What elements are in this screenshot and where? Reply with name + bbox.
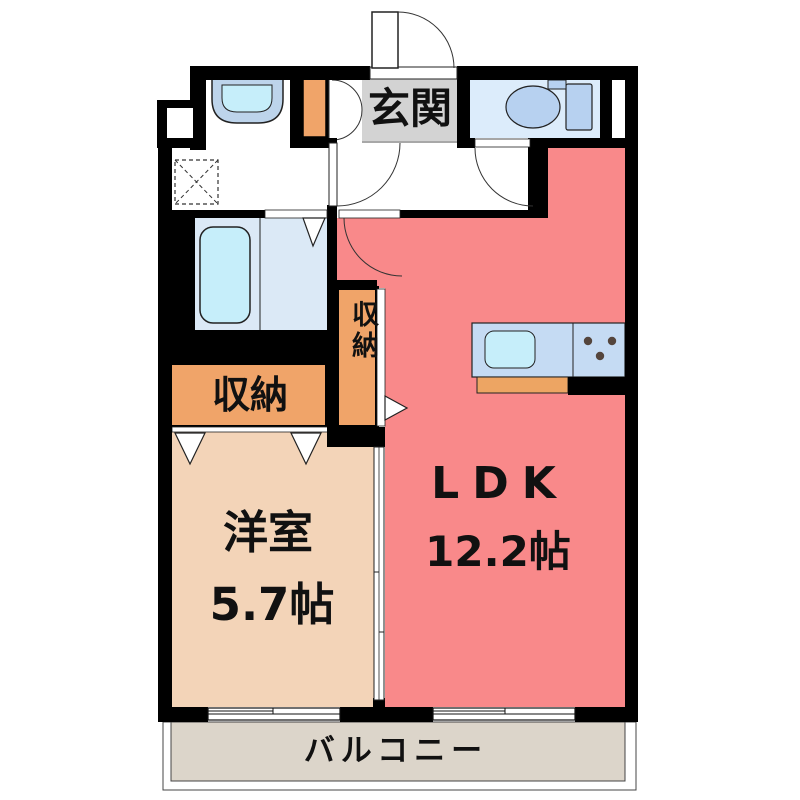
closet-label: 収納 — [168, 376, 332, 414]
ldk-floor — [548, 148, 625, 218]
toilet-tank — [566, 84, 592, 130]
wall — [625, 66, 638, 722]
wall — [190, 66, 370, 80]
ldk-door-opening — [339, 210, 400, 218]
toilet-door-opening — [475, 139, 530, 147]
wall — [600, 66, 612, 148]
western-room-window sliding-window-icon — [208, 708, 340, 720]
burner — [596, 352, 604, 360]
wall — [172, 210, 265, 218]
floor-plan: 玄関 LDK 12.2帖 洋室 5.7帖 収納 収納 バルコニー — [0, 0, 800, 800]
washbasin-icon — [212, 78, 283, 123]
shoe-cabinet — [302, 78, 327, 138]
balcony-label: バルコニー — [196, 736, 596, 767]
washroom-door-arc — [337, 143, 400, 206]
burner — [584, 337, 592, 345]
entrance-door-icon — [370, 12, 457, 79]
kitchen-sink-icon — [485, 331, 535, 368]
wall — [340, 707, 433, 722]
wall — [575, 707, 638, 722]
ldk-floor — [337, 218, 625, 288]
washroom-door-leaf — [329, 143, 337, 206]
ldk-window sliding-window-icon — [433, 708, 575, 720]
wall — [327, 427, 385, 447]
toilet-bowl — [506, 86, 560, 128]
wall — [172, 218, 195, 330]
wall — [327, 205, 337, 218]
ldk-label: LDK — [390, 462, 610, 506]
wall — [460, 138, 475, 148]
entrance-label: 玄関 — [350, 88, 470, 130]
toilet-flush-box — [548, 80, 566, 89]
toilet-door swing-door-icon — [475, 139, 533, 206]
meter-box-icon — [167, 108, 193, 138]
washbasin-bowl — [222, 85, 272, 112]
wall — [568, 377, 625, 395]
closet-opening — [172, 427, 328, 432]
wall — [337, 280, 377, 288]
washroom-door swing-door-icon — [329, 143, 400, 206]
tall-closet-label: 収納 — [340, 300, 376, 430]
western-room-floor — [172, 432, 374, 707]
western-room-label: 洋室 — [168, 510, 368, 555]
washer-space-icon — [175, 160, 218, 204]
closet-opening — [377, 289, 385, 426]
entrance-door-arc — [398, 12, 454, 68]
wall — [400, 210, 548, 218]
ldk-area-label: 12.2帖 — [378, 531, 618, 573]
bathtub — [200, 227, 250, 323]
burner — [608, 337, 616, 345]
wall — [158, 148, 172, 722]
wall — [290, 66, 302, 148]
entrance-door-opening — [370, 67, 457, 79]
western-room-area-label: 5.7帖 — [152, 582, 392, 627]
partition sliding-door-icon — [374, 447, 384, 700]
counter-front-panel — [477, 377, 568, 393]
wall — [172, 330, 337, 363]
wall — [327, 218, 337, 330]
washer-space-cross — [175, 160, 218, 204]
toilet-door-arc — [475, 148, 533, 206]
bathroom-door-opening — [265, 210, 327, 218]
entrance-door-leaf — [372, 12, 398, 68]
